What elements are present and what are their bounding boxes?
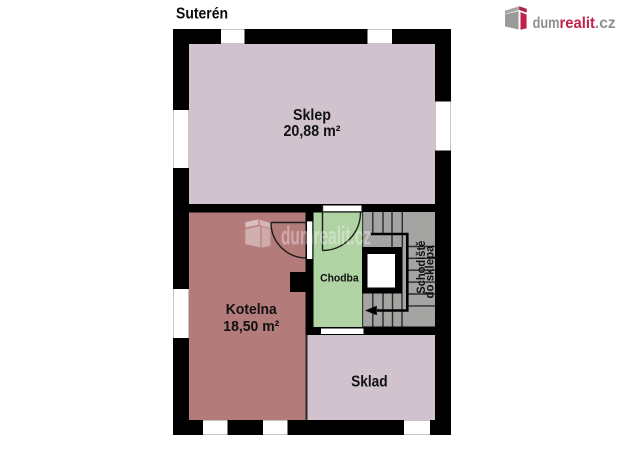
svg-text:Sklep: Sklep [293,107,331,124]
svg-text:20,88 m²: 20,88 m² [284,123,341,140]
svg-text:realit: realit [560,15,596,32]
svg-text:dumrealit.cz: dumrealit.cz [281,221,371,251]
svg-text:do sklepa: do sklepa [422,245,436,298]
svg-text:Chodba: Chodba [320,272,359,284]
svg-text:Suterén: Suterén [176,6,228,23]
svg-text:.cz: .cz [595,15,616,32]
svg-text:dum: dum [533,15,560,32]
svg-text:18,50 m²: 18,50 m² [223,318,279,335]
svg-text:Kotelna: Kotelna [226,301,278,318]
svg-text:Sklad: Sklad [351,373,388,390]
